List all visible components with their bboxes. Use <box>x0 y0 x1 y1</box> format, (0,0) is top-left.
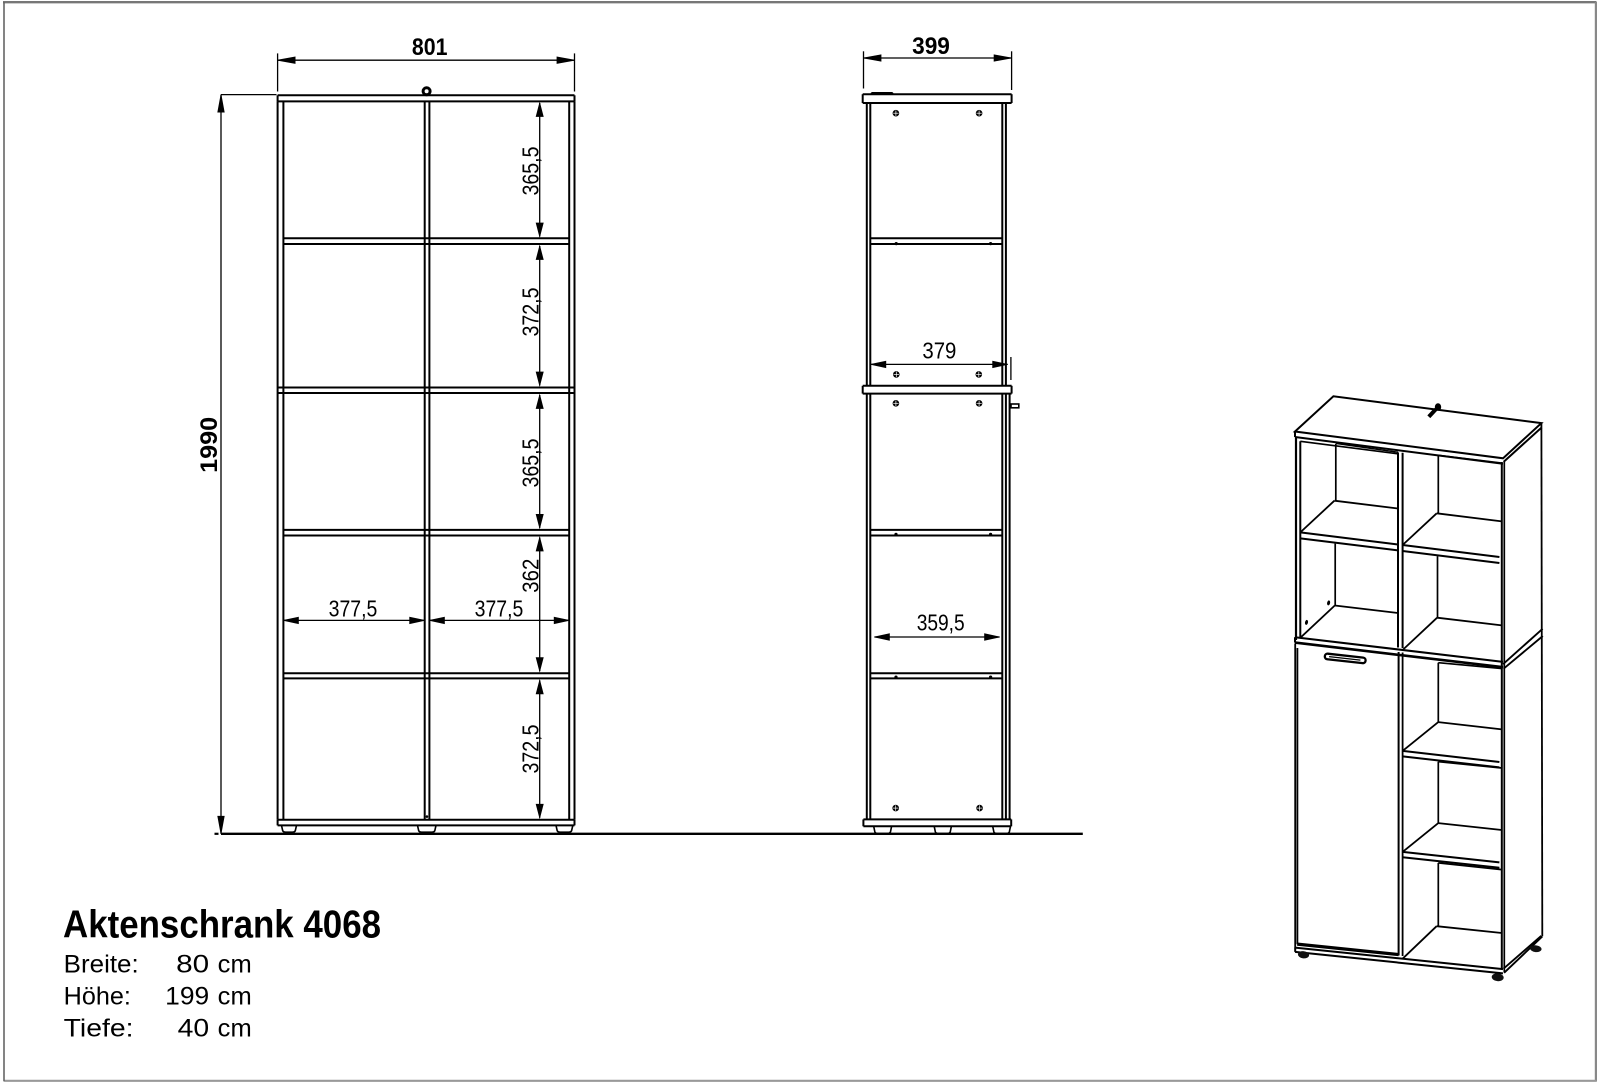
svg-text:199: 199 <box>165 982 209 1010</box>
svg-text:372,5: 372,5 <box>518 288 544 337</box>
svg-text:80: 80 <box>176 950 209 978</box>
svg-text:Aktenschrank 4068: Aktenschrank 4068 <box>63 903 381 946</box>
svg-text:801: 801 <box>412 34 448 61</box>
svg-text:365,5: 365,5 <box>518 147 544 196</box>
svg-text:Breite:: Breite: <box>64 950 139 978</box>
svg-text:365,5: 365,5 <box>518 439 544 488</box>
svg-text:40: 40 <box>178 1015 210 1043</box>
svg-text:379: 379 <box>922 338 956 364</box>
svg-text:399: 399 <box>912 33 950 60</box>
svg-text:359,5: 359,5 <box>917 610 965 636</box>
svg-text:cm: cm <box>218 1015 252 1043</box>
svg-text:377,5: 377,5 <box>475 596 524 622</box>
svg-text:372,5: 372,5 <box>518 725 544 774</box>
svg-text:362: 362 <box>518 559 544 593</box>
svg-text:377,5: 377,5 <box>329 596 378 622</box>
svg-text:1990: 1990 <box>196 417 223 473</box>
svg-text:Tiefe:: Tiefe: <box>64 1015 134 1043</box>
svg-text:cm: cm <box>218 982 252 1010</box>
svg-text:cm: cm <box>218 950 252 978</box>
svg-text:Höhe:: Höhe: <box>64 982 131 1010</box>
